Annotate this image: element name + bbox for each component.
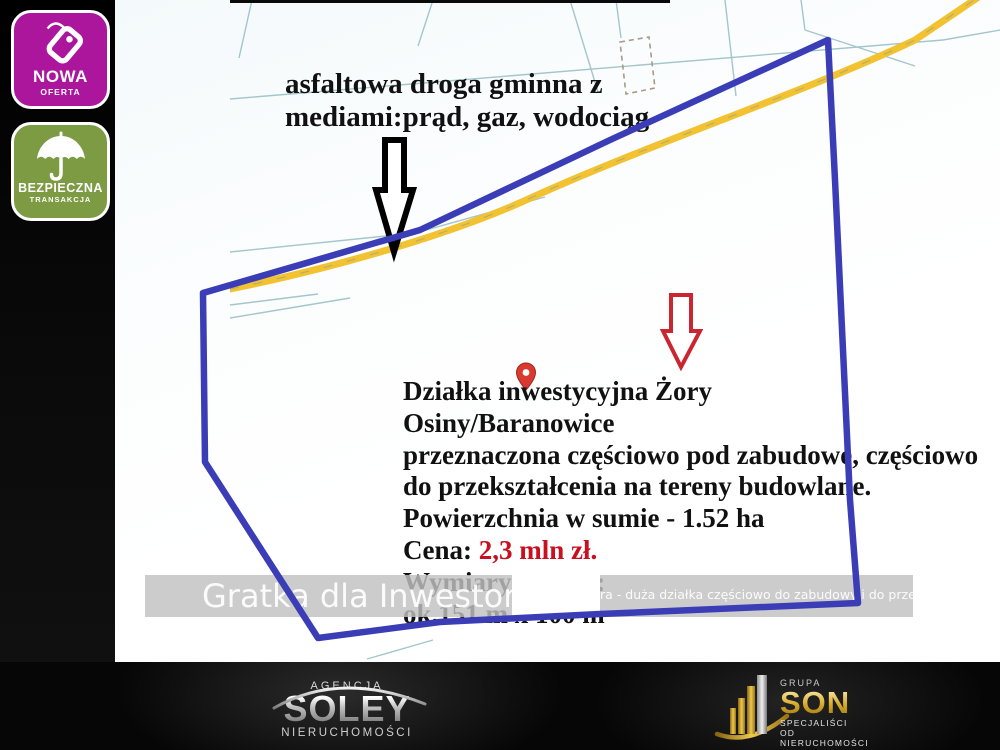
plot-zoning-2: do przekształcenia na tereny budowlane. [403, 471, 978, 503]
plot-zoning-1: przeznaczona częściowo pod zabudowę, czę… [403, 440, 978, 472]
son-text-block: GRUPA SON SPECJALIŚCI OD NIERUCHOMOŚCI [780, 678, 885, 748]
black-down-arrow-icon [376, 140, 413, 252]
price-label: Cena: [403, 535, 479, 565]
scan-edge [230, 0, 670, 3]
badge-safe-subtitle: TRANSAKCJA [14, 195, 107, 204]
price-value: 2,3 mln zł. [479, 535, 598, 565]
road-annotation-line2: mediami:prąd, gaz, wodociąg [285, 101, 649, 134]
red-down-arrow-icon [663, 295, 700, 367]
son-bottom-label-1: SPECJALIŚCI [780, 718, 885, 728]
plot-title: Działka inwestycyjna Żory [403, 376, 978, 408]
road-line [230, 0, 983, 289]
plot-area: Powierzchnia w sumie - 1.52 ha [403, 503, 978, 535]
road-centerline [230, 0, 983, 289]
watermark-title: Gratka dla Inwestora [202, 577, 536, 615]
badge-safe-transaction: BEZPIECZNA TRANSAKCJA [11, 122, 110, 221]
plot-location: Osiny/Baranowice [403, 408, 978, 440]
watermark-subtitle: ra - duża działka częściowo do zabudowy … [600, 587, 952, 602]
cadastral-map: asfaltowa droga gminna z mediami:prąd, g… [115, 0, 1000, 662]
price-tag-icon [32, 17, 90, 69]
footer-bar: AGENCJA SOLEY NIERUCHOMOŚCI [0, 662, 1000, 750]
badge-new-offer-subtitle: OFERTA [14, 87, 107, 97]
badge-new-offer: NOWA OFERTA [11, 10, 110, 109]
listing-image: asfaltowa droga gminna z mediami:prąd, g… [0, 0, 1000, 750]
son-bottom-label-2: OD NIERUCHOMOŚCI [780, 728, 885, 748]
watermark-white-patch [512, 567, 600, 617]
soley-arc-icon [262, 668, 432, 746]
badge-safe-title: BEZPIECZNA [14, 181, 107, 195]
road-annotation: asfaltowa droga gminna z mediami:prąd, g… [285, 68, 649, 134]
badge-new-offer-title: NOWA [14, 67, 107, 87]
plot-price-line: Cena: 2,3 mln zł. [403, 535, 978, 567]
left-black-strip: NOWA OFERTA BEZPIECZNA TRANSAKCJA [0, 0, 115, 662]
son-name: SON [780, 688, 885, 718]
soley-logo: AGENCJA SOLEY NIERUCHOMOŚCI [262, 668, 432, 746]
umbrella-icon [30, 129, 92, 183]
road-annotation-line1: asfaltowa droga gminna z [285, 68, 649, 101]
son-logo: GRUPA SON SPECJALIŚCI OD NIERUCHOMOŚCI [705, 666, 885, 746]
